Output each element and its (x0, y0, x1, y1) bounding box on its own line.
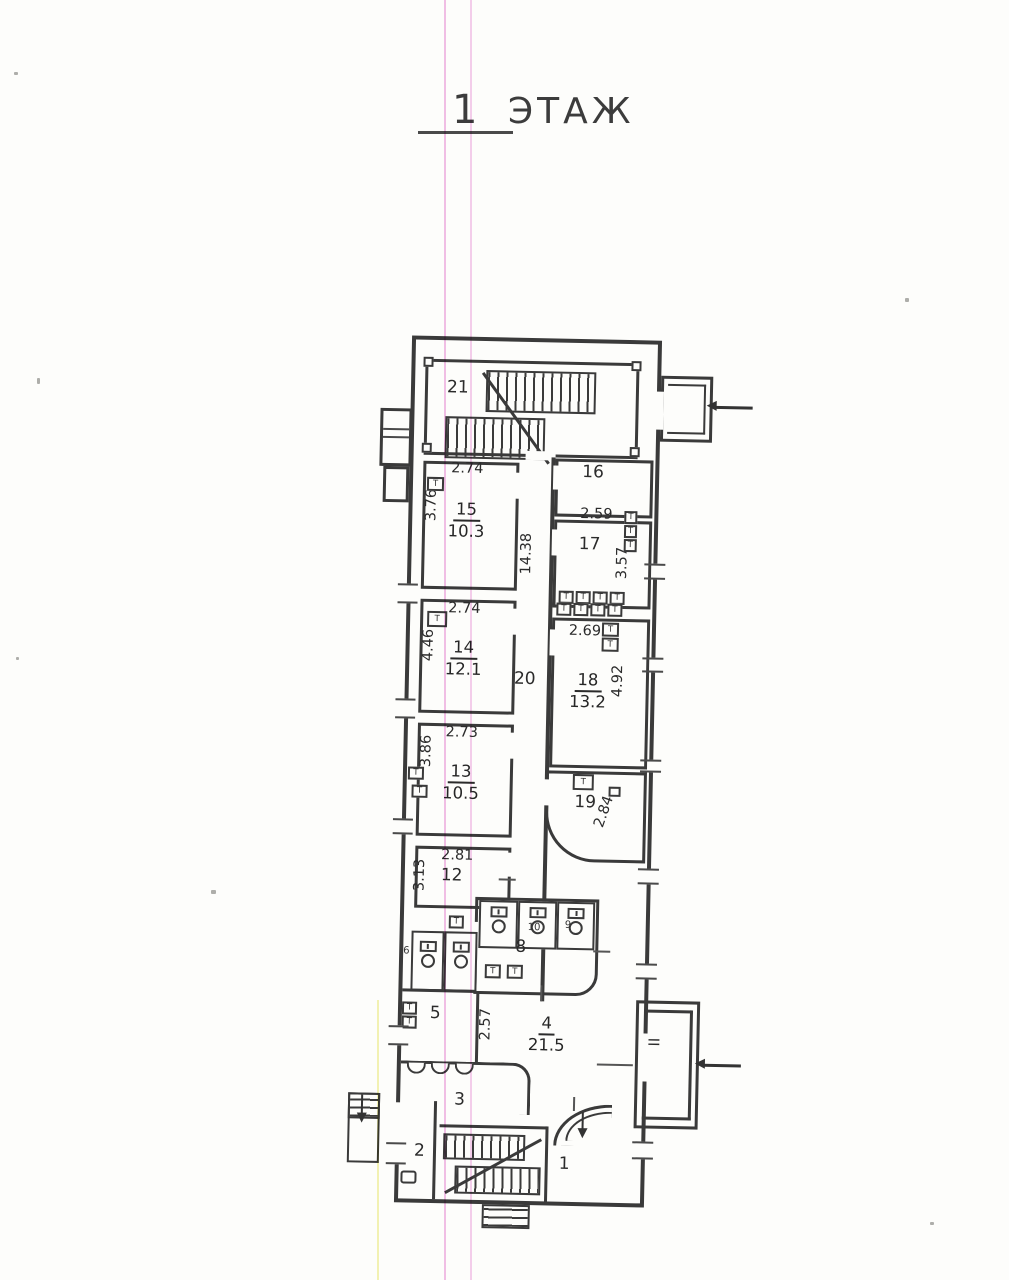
radiator-icon: Т (602, 638, 619, 652)
door-opening (549, 629, 558, 655)
room-3-label: 3 (454, 1092, 465, 1109)
door-opening (552, 529, 561, 555)
registration-line-pink (444, 0, 446, 1280)
room-16-label: 16 (582, 464, 604, 481)
exterior-step (481, 1204, 529, 1229)
dim-corridor-length: 14.38 (519, 533, 534, 575)
fixture-box (400, 1170, 416, 1183)
column-mark (423, 357, 433, 367)
scan-speckle (37, 378, 40, 384)
room-14-area: 12.1 (439, 660, 487, 680)
wc-stall (556, 902, 595, 951)
entrance-arrow-line (703, 1064, 741, 1067)
door-opening (509, 733, 518, 759)
window-tick (386, 1142, 406, 1144)
room-21-label: 21 (447, 379, 469, 396)
window-tick (632, 1157, 653, 1159)
porch-2-label: II (647, 1038, 662, 1047)
radiator-icon: Т (590, 603, 605, 616)
entrance-arrow-down-icon (577, 1128, 587, 1138)
page-title-floor-number: 1 (452, 90, 477, 130)
room-14-number: 14 (450, 637, 477, 660)
toilet-tank-icon (529, 907, 546, 918)
door-opening (553, 465, 562, 489)
toilet-tank-icon (419, 941, 436, 952)
window-tick (386, 1162, 406, 1164)
radiator-icon: Т (624, 525, 637, 538)
entrance-arrow-left-icon (695, 1059, 705, 1069)
room-15-number: 15 (453, 499, 480, 522)
radiator-icon: Т (556, 603, 571, 616)
toilet-bowl-icon (420, 954, 434, 968)
radiator-icon: Т (624, 539, 637, 552)
window-tick (644, 577, 665, 579)
window-tick (640, 770, 661, 772)
room-15-area: 10.3 (442, 522, 490, 542)
door-opening (542, 779, 551, 805)
window-tick (640, 759, 661, 761)
radiator-icon: Т (408, 766, 424, 779)
room-2-label: 2 (414, 1143, 425, 1160)
dim-room-12-height: 3.13 (412, 859, 427, 892)
survey-tick (593, 950, 610, 952)
room-19-label: 19 (574, 794, 596, 811)
radiator-icon: Т (607, 604, 622, 617)
registration-line-yellow (377, 1000, 379, 1280)
window-tick (398, 583, 418, 585)
door-opening (653, 392, 664, 430)
wc-stall (478, 900, 518, 949)
window-tick (393, 832, 413, 834)
window-bay-wall (383, 466, 410, 503)
scan-speckle (930, 1222, 934, 1225)
window-tick (644, 563, 665, 565)
stall-9-label: 9 (565, 921, 572, 931)
page-title-floor-word: ЭТАЖ (508, 94, 635, 130)
room-4-label: 4 21.5 (523, 1013, 570, 1056)
room-17-label: 17 (579, 536, 601, 553)
room-8-label: 8 (515, 939, 526, 956)
floor-plan: 21 10 9 8 Т Т 6 Т (341, 329, 780, 1253)
column-mark (422, 443, 432, 453)
dim-room-17-width: 2.59 (571, 507, 621, 523)
scan-speckle (905, 298, 909, 302)
toilet-bowl-icon (491, 919, 505, 933)
radiator-icon: Т (624, 511, 637, 524)
dim-room-15-width: 2.74 (441, 461, 493, 477)
title-underline (418, 131, 513, 134)
room-5-label: 5 (430, 1005, 441, 1022)
toilet-tank-icon (452, 941, 469, 952)
window-tick (642, 670, 663, 672)
stair-flight-upper (486, 370, 597, 414)
window-tick (638, 868, 659, 870)
wc-stall (443, 931, 477, 992)
room-15-label: 15 10.3 (442, 499, 491, 542)
door-opening (512, 609, 521, 635)
porch-top-inner-wall (667, 384, 706, 435)
dim-room-18-height: 4.92 (611, 665, 626, 698)
scanned-floor-plan-page: { "title": { "number": "1", "word": "ЭТА… (0, 0, 1009, 1280)
window-tick (636, 963, 657, 965)
survey-tick (573, 1097, 575, 1111)
window-tick (397, 601, 417, 603)
room-1-label: 1 (559, 1156, 570, 1173)
radiator-icon: Т (602, 623, 619, 637)
survey-tick (499, 878, 516, 880)
scan-speckle (211, 890, 216, 894)
toilet-tank-icon (567, 908, 584, 919)
column-mark (631, 361, 641, 371)
fixture-box (608, 787, 620, 797)
stair-flight-upper (443, 1133, 526, 1161)
wc-stall (410, 931, 444, 992)
window-tick (395, 698, 415, 700)
stall-6-label: 6 (403, 946, 410, 956)
window-tick (393, 818, 413, 820)
door-opening (515, 473, 524, 499)
scan-speckle (16, 657, 19, 660)
window (393, 1142, 400, 1164)
radiator-icon: Т (573, 603, 588, 616)
stall-10-label: 10 (528, 923, 541, 933)
door-opening (394, 1102, 401, 1146)
window-tick (389, 1025, 409, 1027)
scan-speckle (14, 72, 18, 75)
room-4-area: 21.5 (523, 1035, 569, 1055)
room-18-label: 18 13.2 (564, 670, 611, 713)
radiator-icon: Т (507, 965, 523, 979)
room-4-number: 4 (538, 1013, 555, 1036)
toilet-tank-icon (490, 906, 507, 917)
radiator-icon: Т (573, 774, 594, 790)
window-tick (642, 657, 663, 659)
window-tick (636, 977, 657, 979)
window-tick (395, 716, 415, 718)
survey-tick (540, 985, 542, 1001)
toilet-bowl-icon (453, 954, 467, 968)
dim-room-12-width: 2.81 (431, 848, 483, 864)
entrance-arrow-line (715, 406, 753, 409)
registration-line-pink (470, 0, 472, 1280)
dim-room-15-height: 3.76 (424, 489, 439, 522)
window-tick (388, 1043, 408, 1045)
room-18-area: 13.2 (564, 692, 610, 712)
radiator-icon: Т (485, 964, 501, 978)
entrance-arrow-down-icon (357, 1112, 367, 1122)
room-14-label: 14 12.1 (439, 637, 488, 680)
dim-2-57: 2.57 (478, 1008, 493, 1041)
dim-room-13-height: 3.86 (419, 735, 434, 768)
window-tick (632, 1141, 653, 1143)
door-opening (507, 853, 516, 877)
window-tick (638, 882, 659, 884)
radiator-icon: Т (402, 1001, 417, 1014)
dim-room-14-height: 4.46 (421, 629, 436, 662)
radiator-icon: Т (411, 785, 427, 798)
room-18-number: 18 (574, 670, 601, 693)
radiator-icon: Т (427, 477, 444, 491)
radiator-icon: Т (449, 915, 464, 928)
room-20-label: 20 (514, 671, 536, 688)
entrance-arrow-left-icon (707, 401, 717, 411)
column-mark (630, 447, 640, 457)
